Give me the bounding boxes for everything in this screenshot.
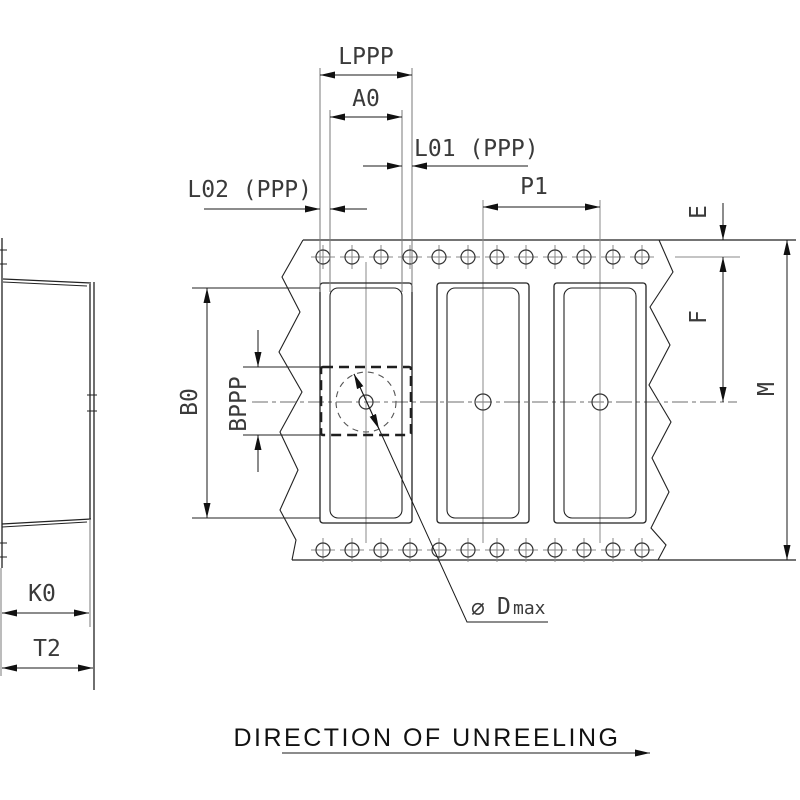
dimension-bppp: BPPP (226, 330, 321, 472)
direction-of-unreeling: DIRECTION OF UNREELING (234, 724, 650, 753)
dimension-m: M (754, 240, 787, 560)
e-label: E (686, 205, 712, 219)
unreeling-caption: DIRECTION OF UNREELING (234, 724, 621, 752)
lppp-label: LPPP (338, 44, 393, 70)
dimension-e: E (686, 203, 723, 240)
l01-label: L01 (PPP) (414, 136, 539, 162)
m-label: M (754, 382, 780, 396)
tape-torn-right-edge (649, 240, 673, 560)
side-profile-view: K0 T2 (0, 238, 97, 690)
dimension-l02: L02 (PPP) (187, 177, 367, 209)
f-label: F (686, 310, 712, 324)
k0-label: K0 (28, 581, 56, 607)
l02-label: L02 (PPP) (187, 177, 312, 203)
dmax-diameter-symbol: ∅ (471, 596, 485, 622)
dimension-p1: P1 (483, 174, 600, 207)
b0-label: B0 (177, 388, 203, 416)
dimension-f: F (686, 257, 723, 402)
technical-drawing-page: K0 T2 (0, 0, 800, 800)
a0-label: A0 (352, 86, 380, 112)
p1-label: P1 (520, 174, 548, 200)
dimension-k0: K0 (2, 581, 89, 613)
dimension-a0: A0 (330, 86, 402, 292)
tape-and-reel-drawing: K0 T2 (0, 0, 800, 800)
dmax-subscript: max (513, 598, 546, 619)
t2-label: T2 (33, 636, 61, 662)
dmax-label: D (497, 594, 511, 620)
dimension-l01: L01 (PPP) (363, 136, 539, 166)
dimension-t2: T2 (2, 636, 93, 668)
bppp-label: BPPP (226, 376, 252, 431)
dimension-lppp: LPPP (320, 44, 412, 292)
tape-plan-view (252, 200, 796, 562)
